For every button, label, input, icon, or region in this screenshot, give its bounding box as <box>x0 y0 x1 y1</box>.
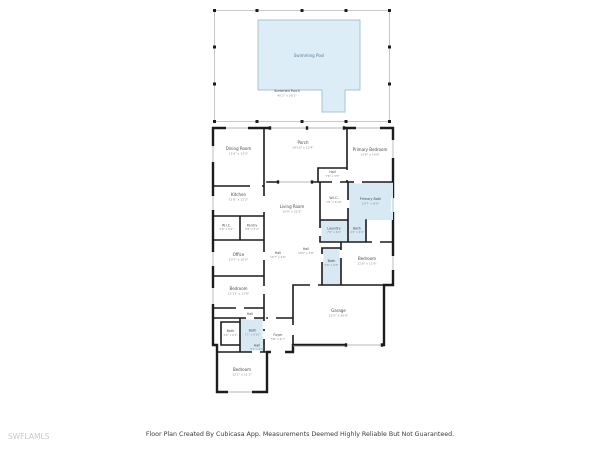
room-dims-screened-porch: 40'2" x 26'1" <box>277 94 297 98</box>
footer-disclaimer: Floor Plan Created By Cubicasa App. Meas… <box>146 431 454 438</box>
floor-plan-page: Swimming Pool Screened Porch 40'2" x 26'… <box>0 0 600 450</box>
floor-plan-image: Swimming Pool Screened Porch 40'2" x 26'… <box>0 0 600 450</box>
swimming-pool-shape <box>258 20 360 112</box>
watermark-swflamls: SWFLAMLS <box>8 432 50 441</box>
